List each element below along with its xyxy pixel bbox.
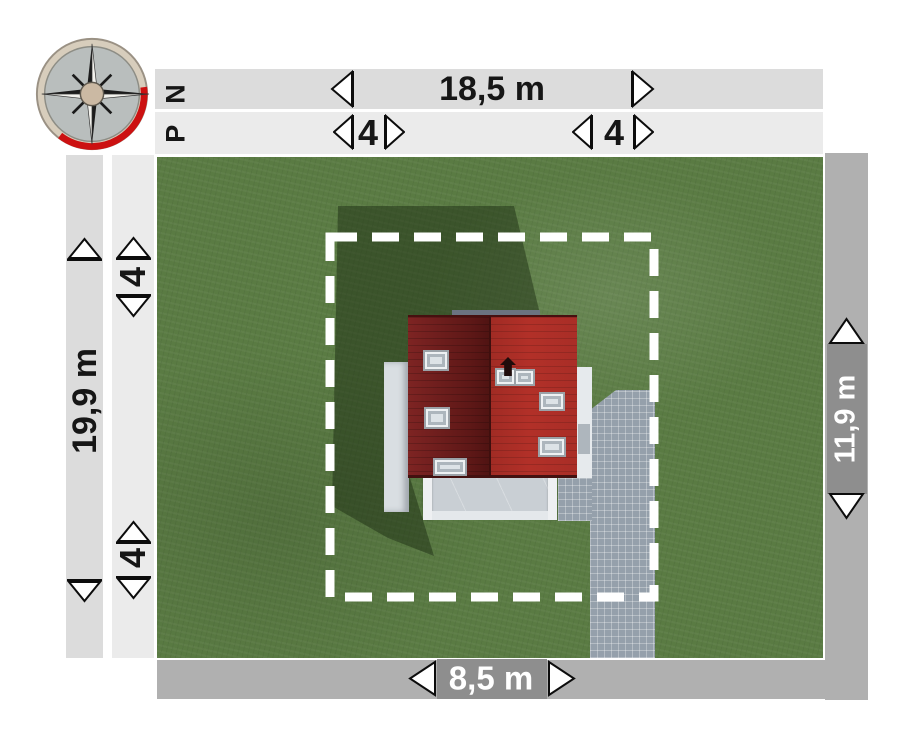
- dimension-extension-line: [116, 542, 151, 544]
- arrow-left-icon: [330, 70, 353, 108]
- arrow-down-icon: [828, 493, 865, 520]
- terrace-sill: [432, 511, 548, 520]
- grass-lot: [157, 157, 823, 658]
- dimension-bottom-width: 8,5 m: [449, 662, 533, 695]
- roof-window: [423, 350, 449, 371]
- roof-window: [539, 392, 565, 411]
- dimension-setback-left-bottom: 4: [115, 548, 151, 568]
- roof-window: [424, 407, 450, 429]
- dimension-setback-top-right: 4: [604, 115, 624, 151]
- dimension-setback-left-top: 4: [115, 267, 151, 287]
- arrow-right-icon: [548, 660, 576, 697]
- arrow-left-icon: [408, 660, 436, 697]
- arrow-up-icon: [828, 317, 865, 344]
- dimension-extension-line: [352, 115, 354, 149]
- roof-vent: [433, 458, 467, 476]
- arrow-right-icon: [632, 70, 655, 108]
- arrow-down-icon: [67, 581, 102, 603]
- arrow-down-icon: [116, 578, 151, 600]
- terrace-pillar-left: [423, 478, 432, 520]
- site-plan: P N 18,5 m 4 4 19,9 m 4 4 11,9 m 8,5 m: [0, 0, 900, 736]
- roof-left-slope: [408, 315, 490, 478]
- arrow-left-icon: [333, 114, 353, 150]
- band-top-inner: [155, 112, 823, 154]
- arrow-right-icon: [634, 114, 654, 150]
- roof-window: [538, 437, 566, 457]
- roof-window: [514, 369, 535, 386]
- dimension-extension-line: [352, 71, 354, 107]
- arrow-up-icon: [67, 237, 102, 259]
- right-wall-window: [578, 410, 590, 468]
- dimension-right-height: 11,9 m: [832, 375, 861, 464]
- compass-rose-icon: [34, 36, 150, 152]
- roof-ridge: [489, 316, 491, 476]
- arrow-up-icon: [116, 236, 151, 258]
- arrow-right-icon: [385, 114, 405, 150]
- terrace-pillar-right: [548, 478, 557, 520]
- arrow-down-icon: [116, 296, 151, 318]
- house-left-wing: [384, 362, 409, 512]
- dimension-setback-top-left: 4: [358, 115, 378, 151]
- arrow-left-icon: [572, 114, 592, 150]
- dimension-extension-line: [67, 259, 102, 261]
- dimension-extension-line: [116, 258, 151, 260]
- dimension-left-height: 19,9 m: [68, 348, 102, 454]
- arrow-up-icon: [116, 520, 151, 542]
- dimension-top-width: 18,5 m: [439, 72, 545, 106]
- dimension-extension-line: [591, 115, 593, 149]
- compass-north-label: P N: [163, 77, 190, 143]
